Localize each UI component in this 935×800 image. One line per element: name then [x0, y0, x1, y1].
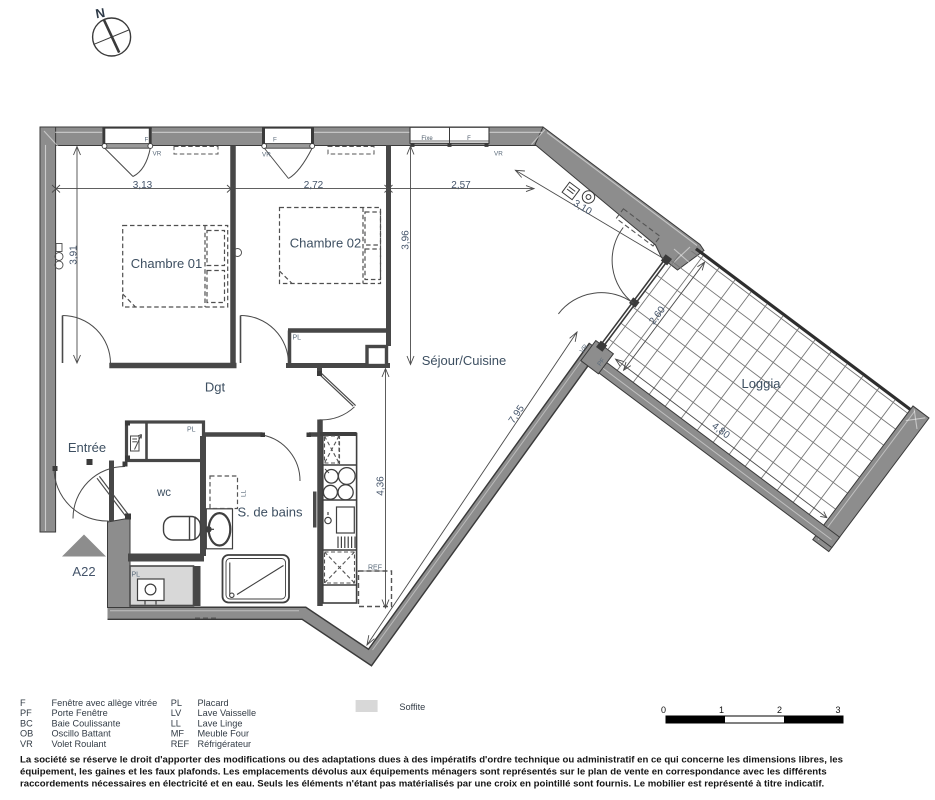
svg-text:2,72: 2,72 [304, 180, 324, 191]
svg-text:wc: wc [156, 487, 171, 499]
svg-text:Lave Linge: Lave Linge [198, 718, 243, 728]
svg-text:4,36: 4,36 [376, 476, 387, 496]
svg-text:0: 0 [661, 705, 666, 715]
svg-text:REF: REF [171, 739, 190, 749]
svg-text:F: F [467, 136, 471, 142]
svg-text:Chambre 02: Chambre 02 [290, 236, 362, 251]
svg-text:Baie Coulissante: Baie Coulissante [52, 718, 121, 728]
svg-text:Loggia: Loggia [741, 376, 781, 391]
svg-text:Placard: Placard [198, 698, 229, 708]
svg-text:raccordements nécessaires en é: raccordements nécessaires en électricité… [20, 779, 824, 790]
svg-text:Soffite: Soffite [399, 702, 425, 712]
svg-text:PL: PL [293, 335, 302, 342]
svg-text:3,91: 3,91 [69, 245, 80, 265]
svg-text:VR: VR [20, 739, 33, 749]
svg-text:Oscillo Battant: Oscillo Battant [52, 729, 112, 739]
svg-text:La société se réserve le droit: La société se réserve le droit d'apporte… [20, 755, 843, 766]
svg-text:1: 1 [719, 705, 724, 715]
svg-text:Volet Roulant: Volet Roulant [52, 739, 107, 749]
svg-text:VR: VR [262, 152, 271, 159]
svg-text:LL: LL [171, 718, 181, 728]
svg-text:Réfrigérateur: Réfrigérateur [198, 739, 252, 749]
svg-text:Fenêtre avec allège vitrée: Fenêtre avec allège vitrée [52, 698, 158, 708]
svg-text:MF: MF [171, 729, 185, 739]
svg-text:PL: PL [171, 698, 182, 708]
svg-text:F: F [20, 698, 26, 708]
svg-text:Entrée: Entrée [68, 440, 106, 455]
svg-text:LV: LV [171, 708, 182, 718]
svg-text:Porte Fenêtre: Porte Fenêtre [52, 708, 108, 718]
svg-text:OB: OB [20, 729, 33, 739]
svg-text:S. de bains: S. de bains [237, 505, 303, 520]
svg-text:VR: VR [494, 151, 503, 158]
svg-text:F: F [145, 137, 149, 144]
svg-text:F: F [273, 137, 277, 144]
svg-text:équipement, les gaines et les: équipement, les gaines et les faux plafo… [20, 767, 827, 778]
svg-text:Séjour/Cuisine: Séjour/Cuisine [422, 353, 507, 368]
svg-text:3: 3 [835, 705, 840, 715]
svg-text:REF: REF [368, 565, 382, 572]
svg-text:LL: LL [241, 489, 248, 497]
svg-text:2,57: 2,57 [451, 180, 471, 191]
svg-text:Chambre 01: Chambre 01 [131, 256, 203, 271]
svg-text:Dgt: Dgt [205, 380, 226, 395]
svg-text:BC: BC [20, 718, 33, 728]
svg-text:VR: VR [153, 151, 162, 158]
svg-text:PL: PL [132, 572, 141, 579]
svg-text:Meuble Four: Meuble Four [198, 729, 250, 739]
svg-text:Lave Vaisselle: Lave Vaisselle [198, 708, 257, 718]
svg-text:PF: PF [20, 708, 32, 718]
svg-text:3,13: 3,13 [133, 180, 153, 191]
svg-text:PL: PL [187, 427, 196, 434]
svg-text:3,96: 3,96 [401, 230, 412, 250]
svg-text:Fixe: Fixe [421, 136, 433, 142]
svg-text:2: 2 [777, 705, 782, 715]
svg-text:A22: A22 [72, 564, 95, 579]
